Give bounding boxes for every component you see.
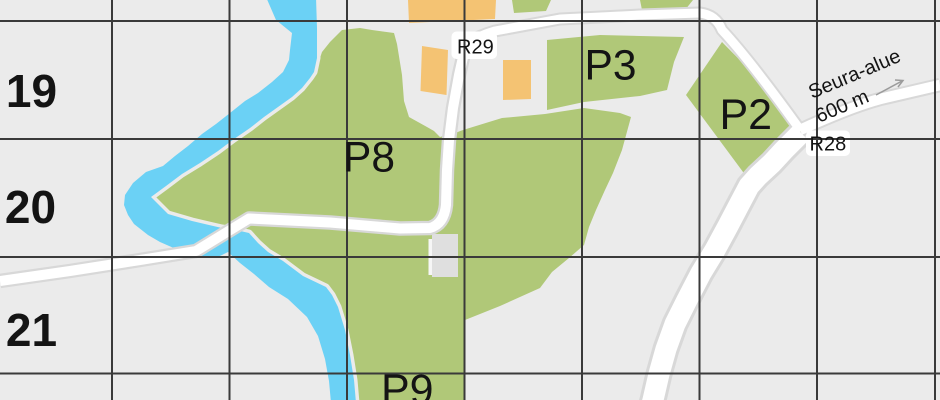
svg-text:R29: R29 — [457, 37, 494, 59]
svg-text:P9: P9 — [381, 366, 434, 400]
svg-text:P8: P8 — [343, 135, 395, 182]
svg-text:P3: P3 — [585, 43, 637, 90]
svg-text:21: 21 — [6, 304, 57, 356]
svg-text:P2: P2 — [720, 91, 773, 139]
svg-text:R28: R28 — [810, 134, 847, 156]
svg-text:20: 20 — [5, 181, 56, 233]
svg-text:19: 19 — [6, 65, 57, 117]
